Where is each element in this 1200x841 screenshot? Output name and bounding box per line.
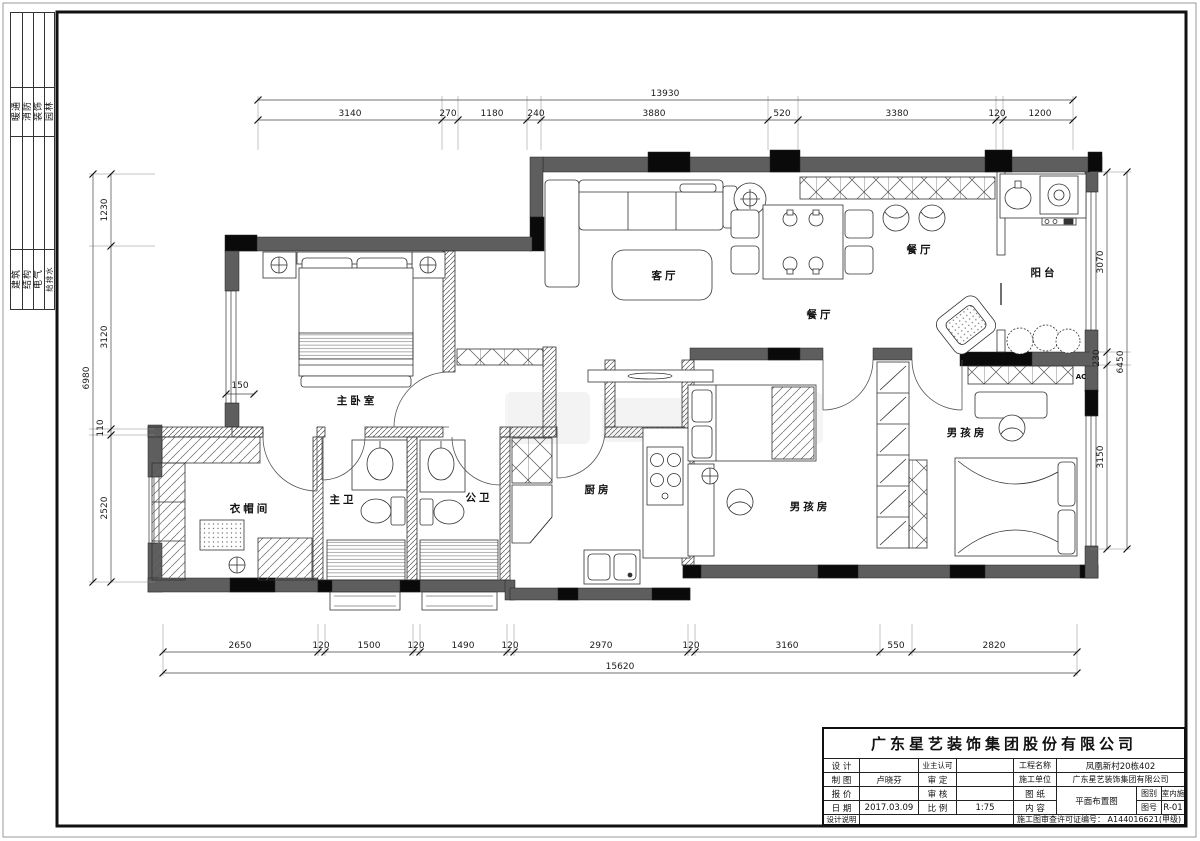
public-bath-fixtures — [420, 440, 498, 580]
svg-text:110: 110 — [96, 419, 106, 436]
svg-text:1180: 1180 — [481, 109, 504, 119]
svg-text:1200: 1200 — [1029, 109, 1052, 119]
date-label: 日 期 — [824, 801, 860, 815]
dim-bottom-total: 15620 — [606, 662, 635, 672]
stools — [883, 205, 945, 231]
svg-text:120: 120 — [988, 109, 1005, 119]
builder-value: 广东星艺装饰集团有限公司 — [1057, 773, 1184, 787]
scale-value: 1:75 — [957, 801, 1014, 815]
door-boy-right — [912, 360, 962, 410]
dim-top-total: 13930 — [651, 89, 680, 99]
label-kitchen: 厨房 — [585, 483, 612, 496]
design-label: 设 计 — [824, 759, 860, 773]
dim-left-total: 6980 — [82, 366, 92, 389]
ac-platform — [968, 366, 1073, 384]
label-dining-lower: 餐厅 — [806, 308, 834, 321]
paper-label: 图 纸 — [1014, 787, 1057, 801]
svg-text:3070: 3070 — [1096, 250, 1106, 273]
hall-cabinet — [457, 349, 543, 365]
label-ac: AC — [1076, 373, 1087, 381]
owner-approve-label: 业主认可 — [919, 759, 957, 773]
discipline-hvac: 暖通 — [11, 89, 23, 133]
discipline-strip: 暖通 消防 装饰 园林 建筑 结构 电气 给排水 — [10, 12, 55, 310]
category-value: 室内施 — [1162, 787, 1184, 801]
notes-value — [860, 815, 1014, 824]
label-boy-room-right: 男孩房 — [947, 426, 988, 439]
label-balcony: 阳台 — [1031, 266, 1058, 279]
svg-text:1490: 1490 — [452, 641, 475, 651]
svg-text:550: 550 — [887, 641, 904, 651]
approve-label: 审 定 — [919, 773, 957, 787]
project-name-value: 凤凰新村20栋402 — [1057, 759, 1184, 773]
floor-plan-canvas: 13930 3140 270 1180 240 3880 520 3380 12… — [0, 0, 1200, 841]
svg-text:2970: 2970 — [590, 641, 613, 651]
discipline-plumbing: 给排水 — [44, 257, 56, 301]
kitchen-fixtures — [512, 428, 690, 584]
draft-label: 制 图 — [824, 773, 860, 787]
label-living: 客厅 — [651, 269, 679, 282]
label-dining-upper: 餐厅 — [906, 243, 934, 256]
content-label: 内 容 — [1014, 801, 1057, 815]
title-block: 广东星艺装饰集团股份有限公司 设 计 业主认可 工程名称 凤凰新村20栋402 … — [822, 727, 1186, 826]
master-bath-fixtures — [327, 440, 407, 580]
label-public-bath: 公卫 — [466, 492, 493, 504]
dim-ticks-top — [255, 97, 1077, 124]
svg-text:230: 230 — [1092, 349, 1102, 366]
content-value: 平面布置图 — [1057, 787, 1137, 815]
door-boy-left — [823, 360, 873, 410]
svg-text:3150: 3150 — [1096, 445, 1106, 468]
svg-text:120: 120 — [682, 641, 699, 651]
check-value — [957, 787, 1014, 801]
strip-divider — [11, 249, 54, 250]
number-label: 图号 — [1137, 801, 1162, 815]
svg-text:2820: 2820 — [983, 641, 1006, 651]
number-value: R-01 — [1162, 801, 1184, 815]
boy-room-right-furniture — [955, 392, 1077, 556]
svg-text:3140: 3140 — [339, 109, 362, 119]
company-name: 广东星艺装饰集团股份有限公司 — [824, 729, 1184, 759]
plants — [1007, 325, 1080, 354]
dining-table — [731, 205, 873, 279]
svg-text:1500: 1500 — [358, 641, 381, 651]
dim-offset-150: 150 — [231, 381, 248, 391]
discipline-structure: 结构 — [22, 257, 34, 301]
category-label: 图别 — [1137, 787, 1162, 801]
svg-text:2650: 2650 — [229, 641, 252, 651]
notes-label: 设计说明 — [824, 815, 860, 824]
design-value — [860, 759, 919, 773]
furniture — [152, 174, 1086, 584]
svg-text:120: 120 — [501, 641, 518, 651]
tv-console — [588, 370, 713, 382]
svg-text:240: 240 — [527, 109, 544, 119]
project-name-label: 工程名称 — [1014, 759, 1057, 773]
svg-text:520: 520 — [773, 109, 790, 119]
strip-divider — [11, 87, 54, 88]
svg-text:1230: 1230 — [100, 198, 110, 221]
discipline-landscape: 园林 — [44, 89, 56, 133]
discipline-decoration: 装饰 — [33, 89, 45, 133]
svg-text:120: 120 — [407, 641, 424, 651]
dim-right-total: 6450 — [1116, 350, 1126, 373]
quote-label: 报 价 — [824, 787, 860, 801]
label-cloakroom: 衣帽间 — [230, 502, 271, 515]
date-value: 2017.03.09 — [860, 801, 919, 815]
svg-text:3160: 3160 — [776, 641, 799, 651]
svg-text:3380: 3380 — [886, 109, 909, 119]
drawing-sheet: 13930 3140 270 1180 240 3880 520 3380 12… — [0, 0, 1200, 841]
svg-text:270: 270 — [439, 109, 456, 119]
draft-value: 卢晓芬 — [860, 773, 919, 787]
discipline-architecture: 建筑 — [11, 257, 23, 301]
boy-room-left-furniture — [688, 385, 816, 556]
label-master-bedroom: 主卧室 — [337, 394, 378, 407]
owner-approve-value — [957, 759, 1014, 773]
door-cloakroom — [263, 437, 317, 491]
balcony-counter — [1000, 174, 1086, 225]
label-master-bath: 主卫 — [330, 493, 357, 506]
scale-label: 比 例 — [919, 801, 957, 815]
svg-text:120: 120 — [312, 641, 329, 651]
label-boy-room-left: 男孩房 — [790, 500, 831, 513]
check-label: 审 核 — [919, 787, 957, 801]
permit-number: 施工图审查许可证编号： A144016621(甲级) — [1014, 815, 1184, 824]
approve-value — [957, 773, 1014, 787]
armchair — [933, 292, 999, 357]
builder-label: 施工单位 — [1014, 773, 1057, 787]
discipline-fire: 消防 — [22, 89, 34, 133]
master-bed — [263, 252, 445, 387]
discipline-electrical: 电气 — [33, 257, 45, 301]
svg-text:2520: 2520 — [100, 496, 110, 519]
sideboard — [800, 177, 995, 199]
quote-value — [860, 787, 919, 801]
svg-text:3120: 3120 — [100, 325, 110, 348]
strip-divider — [11, 136, 54, 137]
boys-wardrobe — [877, 362, 927, 548]
svg-text:3880: 3880 — [643, 109, 666, 119]
